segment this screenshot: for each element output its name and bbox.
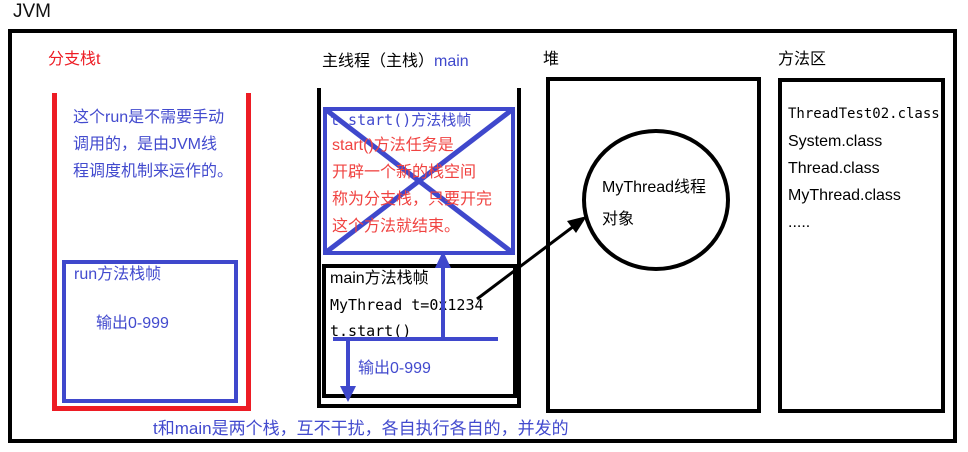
run-frame-output: 输出0-999 — [96, 314, 169, 333]
start-method-frame-title: t.start()方法栈帧 — [330, 111, 471, 130]
main-method-frame-title: main方法栈帧 — [330, 269, 429, 288]
jvm-thread-diagram: JVM 分支栈t 这个run是不需要手动 调用的，是由JVM线 程调度机制来运作… — [0, 0, 968, 452]
method-area-label: 方法区 — [778, 50, 826, 69]
main-stack-label-black: 主线程（主栈） — [322, 53, 434, 70]
note-line: 这个方法就结束。 — [332, 213, 492, 240]
heap-label: 堆 — [543, 50, 559, 69]
main-stack-label-main: main — [434, 53, 469, 70]
start-frame-note: start()方法任务是 开辟一个新的栈空间 称为分支栈，只要开完 这个方法就结… — [332, 132, 492, 240]
run-method-frame-title: run方法栈帧 — [74, 265, 161, 284]
note-line: 程调度机制来运作的。 — [73, 158, 233, 185]
start-frame-title-code: t.start() — [330, 111, 411, 129]
note-line: start()方法任务是 — [332, 132, 492, 159]
main-frame-output: 输出0-999 — [358, 359, 431, 378]
note-line: 这个run是不需要手动 — [73, 104, 233, 131]
main-frame-code: MyThread t=0x1234 t.start() — [330, 292, 484, 344]
code-line: t.start() — [330, 318, 484, 344]
start-frame-title-rest: 方法栈帧 — [411, 112, 471, 129]
object-line: MyThread线程 — [602, 172, 706, 204]
class-item: ThreadTest02.class — [788, 101, 940, 128]
loaded-class-list: ThreadTest02.class System.class Thread.c… — [788, 101, 940, 236]
page-title: JVM — [13, 1, 51, 24]
thread-object-text: MyThread线程 对象 — [602, 172, 706, 236]
note-line: 开辟一个新的栈空间 — [332, 159, 492, 186]
code-line: MyThread t=0x1234 — [330, 292, 484, 318]
object-line: 对象 — [602, 204, 706, 236]
main-stack-label: 主线程（主栈）main — [322, 52, 469, 71]
branch-stack-note: 这个run是不需要手动 调用的，是由JVM线 程调度机制来运作的。 — [73, 104, 233, 185]
note-line: 调用的，是由JVM线 — [73, 131, 233, 158]
footer-note: t和main是两个栈，互不干扰，各自执行各自的，并发的 — [153, 419, 569, 439]
class-item: System.class — [788, 128, 940, 155]
class-item: ..... — [788, 209, 940, 236]
note-line: 称为分支栈，只要开完 — [332, 186, 492, 213]
class-item: Thread.class — [788, 155, 940, 182]
branch-stack-label: 分支栈t — [48, 50, 100, 69]
class-item: MyThread.class — [788, 182, 940, 209]
